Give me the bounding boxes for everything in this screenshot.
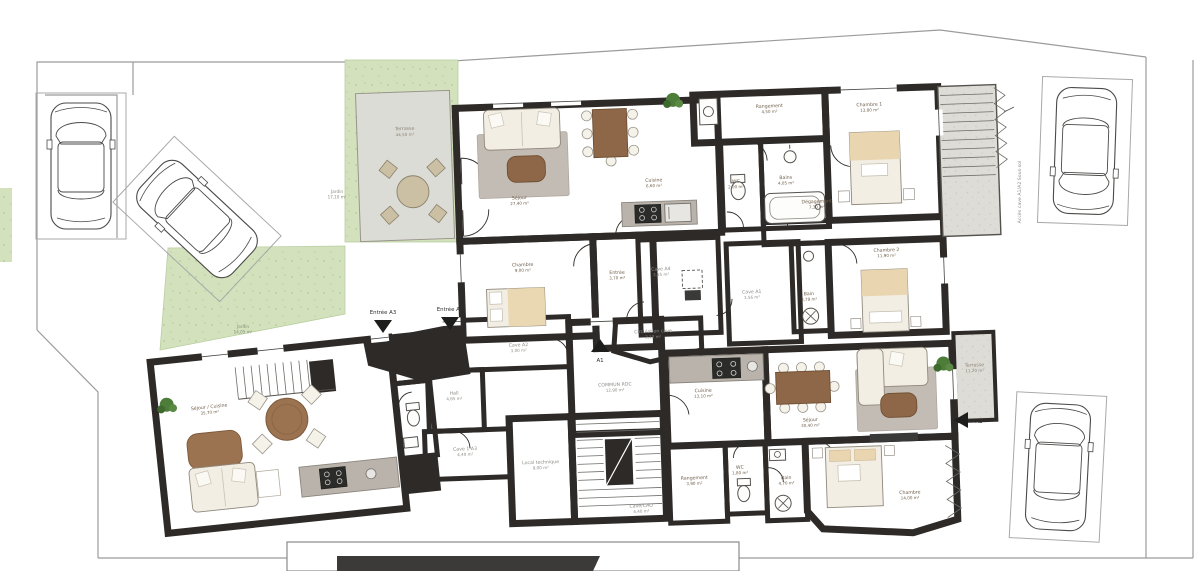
floor-plan-canvas: Terrasse44,50 m² Jardin17,10 m² Jardin14… — [0, 0, 1200, 571]
label-sejour-cuisine-a1: Séjour / Cuisine35,70 m² — [191, 401, 229, 416]
label-entree-a1: Entrée A1 — [437, 306, 464, 313]
label-rangement-top: Rangement4,50 m² — [756, 103, 784, 114]
dining-table — [764, 361, 840, 414]
sofa — [189, 460, 282, 513]
label-cave-a2: Cave A23,00 m² — [509, 342, 529, 353]
ottoman — [256, 469, 281, 497]
toilet-icon — [406, 402, 421, 426]
dining-table — [581, 108, 639, 167]
car-icon — [36, 93, 126, 239]
coffee-table — [880, 393, 917, 418]
label-cuisine-a2: Cuisine13,10 m² — [694, 388, 713, 399]
plant-icon — [156, 397, 177, 414]
kitchen-counter-a2 — [669, 354, 764, 383]
shower-icon — [802, 308, 819, 325]
label-jardin-left: Jardin17,10 m² — [328, 189, 347, 200]
label-terrasse-top: Terrasse44,50 m² — [394, 126, 415, 138]
floor-plan-page: Terrasse44,50 m² Jardin17,10 m² Jardin14… — [0, 0, 1200, 571]
sink-icon — [747, 361, 757, 371]
terrace-top — [355, 90, 454, 241]
label-circulation-cave: Circulation cave2,10 m² — [634, 328, 672, 340]
washing-machine-icon — [699, 98, 718, 125]
access-cave-pointer — [1004, 107, 1014, 112]
garden-edge-strip — [0, 188, 12, 262]
label-sejour-a3: Séjour27,40 m² — [510, 194, 529, 206]
label-terrasse-right: Terrasse11,20 m² — [964, 362, 985, 373]
car-icon — [1037, 76, 1132, 225]
label-chambre2: Chambre 211,90 m² — [873, 247, 899, 258]
kitchen-counter-a1 — [299, 457, 400, 497]
label-chambre-a3: Chambre9,00 m² — [512, 262, 534, 273]
neighbour-building — [287, 542, 739, 571]
shaft-dashed — [682, 270, 703, 289]
terrace-right — [953, 332, 996, 421]
label-cave-1a3: Cave 1-A34,40 m² — [453, 446, 477, 457]
label-rangement-a2: Rangement3,90 m² — [681, 475, 709, 486]
label-local-technique: Local technique9,00 m² — [522, 459, 559, 471]
bed — [836, 130, 914, 205]
label-bain-a2: Bain4,70 m² — [778, 475, 795, 486]
tv-console — [870, 432, 918, 442]
stove-icon — [712, 358, 741, 379]
toilet-icon — [737, 478, 751, 501]
sink-icon — [784, 145, 797, 163]
label-unit-a1: A1 — [596, 358, 603, 364]
label-acces-cave: Accès cave A1/A2 Sous-sol — [1016, 161, 1023, 224]
bed — [849, 268, 921, 332]
label-cave-a1: Cave A13,56 m² — [742, 289, 762, 300]
label-chambre1: Chambre 113,80 m² — [856, 102, 882, 113]
label-cuisine-a3: Cuisine6,60 m² — [645, 177, 663, 188]
car-icon — [1009, 392, 1107, 543]
label-wc-a2: WC1,80 m² — [732, 464, 749, 475]
sink-icon — [803, 251, 813, 261]
sink-icon — [769, 449, 785, 461]
wall-mass — [402, 455, 442, 495]
sofa — [483, 108, 560, 151]
stove-icon — [319, 466, 347, 489]
bed — [812, 445, 896, 508]
label-cave-cao: Cave/CAO4,40 m² — [629, 503, 653, 514]
label-commun-rdc: COMMUN RDC12,90 m² — [598, 381, 633, 393]
bed — [487, 287, 546, 327]
shaft-solid — [685, 290, 701, 301]
shower-icon — [775, 495, 792, 512]
label-entree-a3-room: Entrée3,70 m² — [609, 269, 626, 281]
staircase-top-right — [938, 84, 1010, 236]
terrace-table — [396, 175, 429, 208]
entrance-arrow-a3 — [374, 320, 392, 333]
stove-icon — [635, 204, 662, 223]
coffee-table — [507, 155, 546, 182]
label-bain-right: Bain3,79 m² — [801, 291, 818, 302]
label-cave-a4: Cave A43,55 m² — [651, 266, 671, 277]
label-entree-a3: Entrée A3 — [370, 309, 397, 316]
label-sejour-a2: Séjour30,40 m² — [801, 416, 820, 428]
plant-icon — [663, 92, 684, 108]
kitchen-counter-a3 — [622, 200, 698, 227]
label-chambre-a2: Chambre14,00 m² — [899, 489, 921, 500]
garden-lower — [160, 246, 345, 350]
label-bains-top: Bains4,05 m² — [778, 175, 795, 186]
label-hall: Hall4,85 m² — [446, 390, 463, 401]
label-unit-a2: A2 — [975, 419, 982, 425]
sink-icon — [403, 437, 418, 448]
